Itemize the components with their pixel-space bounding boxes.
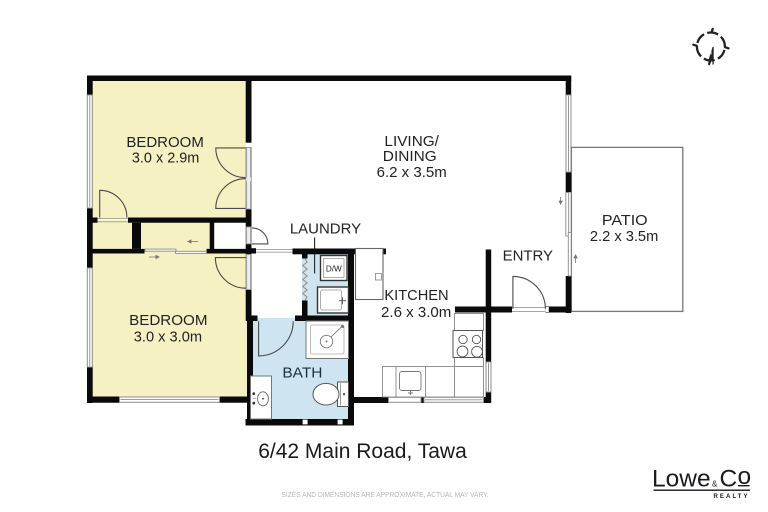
svg-text:REALTY: REALTY [714,494,750,500]
svg-text:6/42 Main Road, Tawa: 6/42 Main Road, Tawa [258,440,467,463]
svg-text:DINING: DINING [383,148,437,165]
svg-text:BATH: BATH [282,364,322,381]
svg-text:3.0 x 2.9m: 3.0 x 2.9m [132,150,199,167]
svg-text:&: & [712,480,718,489]
svg-text:6.2 x 3.5m: 6.2 x 3.5m [377,164,447,181]
svg-text:KITCHEN: KITCHEN [384,287,448,304]
svg-text:LAUNDRY: LAUNDRY [290,220,361,237]
svg-text:C: C [720,466,738,493]
svg-text:PATIO: PATIO [602,212,648,229]
svg-text:2.6 x 3.0m: 2.6 x 3.0m [381,304,451,321]
svg-text:Lowe: Lowe [652,466,711,493]
svg-text:BEDROOM: BEDROOM [129,312,207,329]
svg-text:3.0 x 3.0m: 3.0 x 3.0m [134,329,202,346]
svg-text:D/W: D/W [326,265,342,274]
svg-text:SIZES AND DIMENSIONS ARE APPRO: SIZES AND DIMENSIONS ARE APPROXIMATE, AC… [282,490,489,499]
svg-text:N: N [709,51,712,56]
svg-text:ENTRY: ENTRY [503,247,553,264]
svg-text:BEDROOM: BEDROOM [126,134,204,151]
svg-text:2.2 x 3.5m: 2.2 x 3.5m [590,228,658,245]
